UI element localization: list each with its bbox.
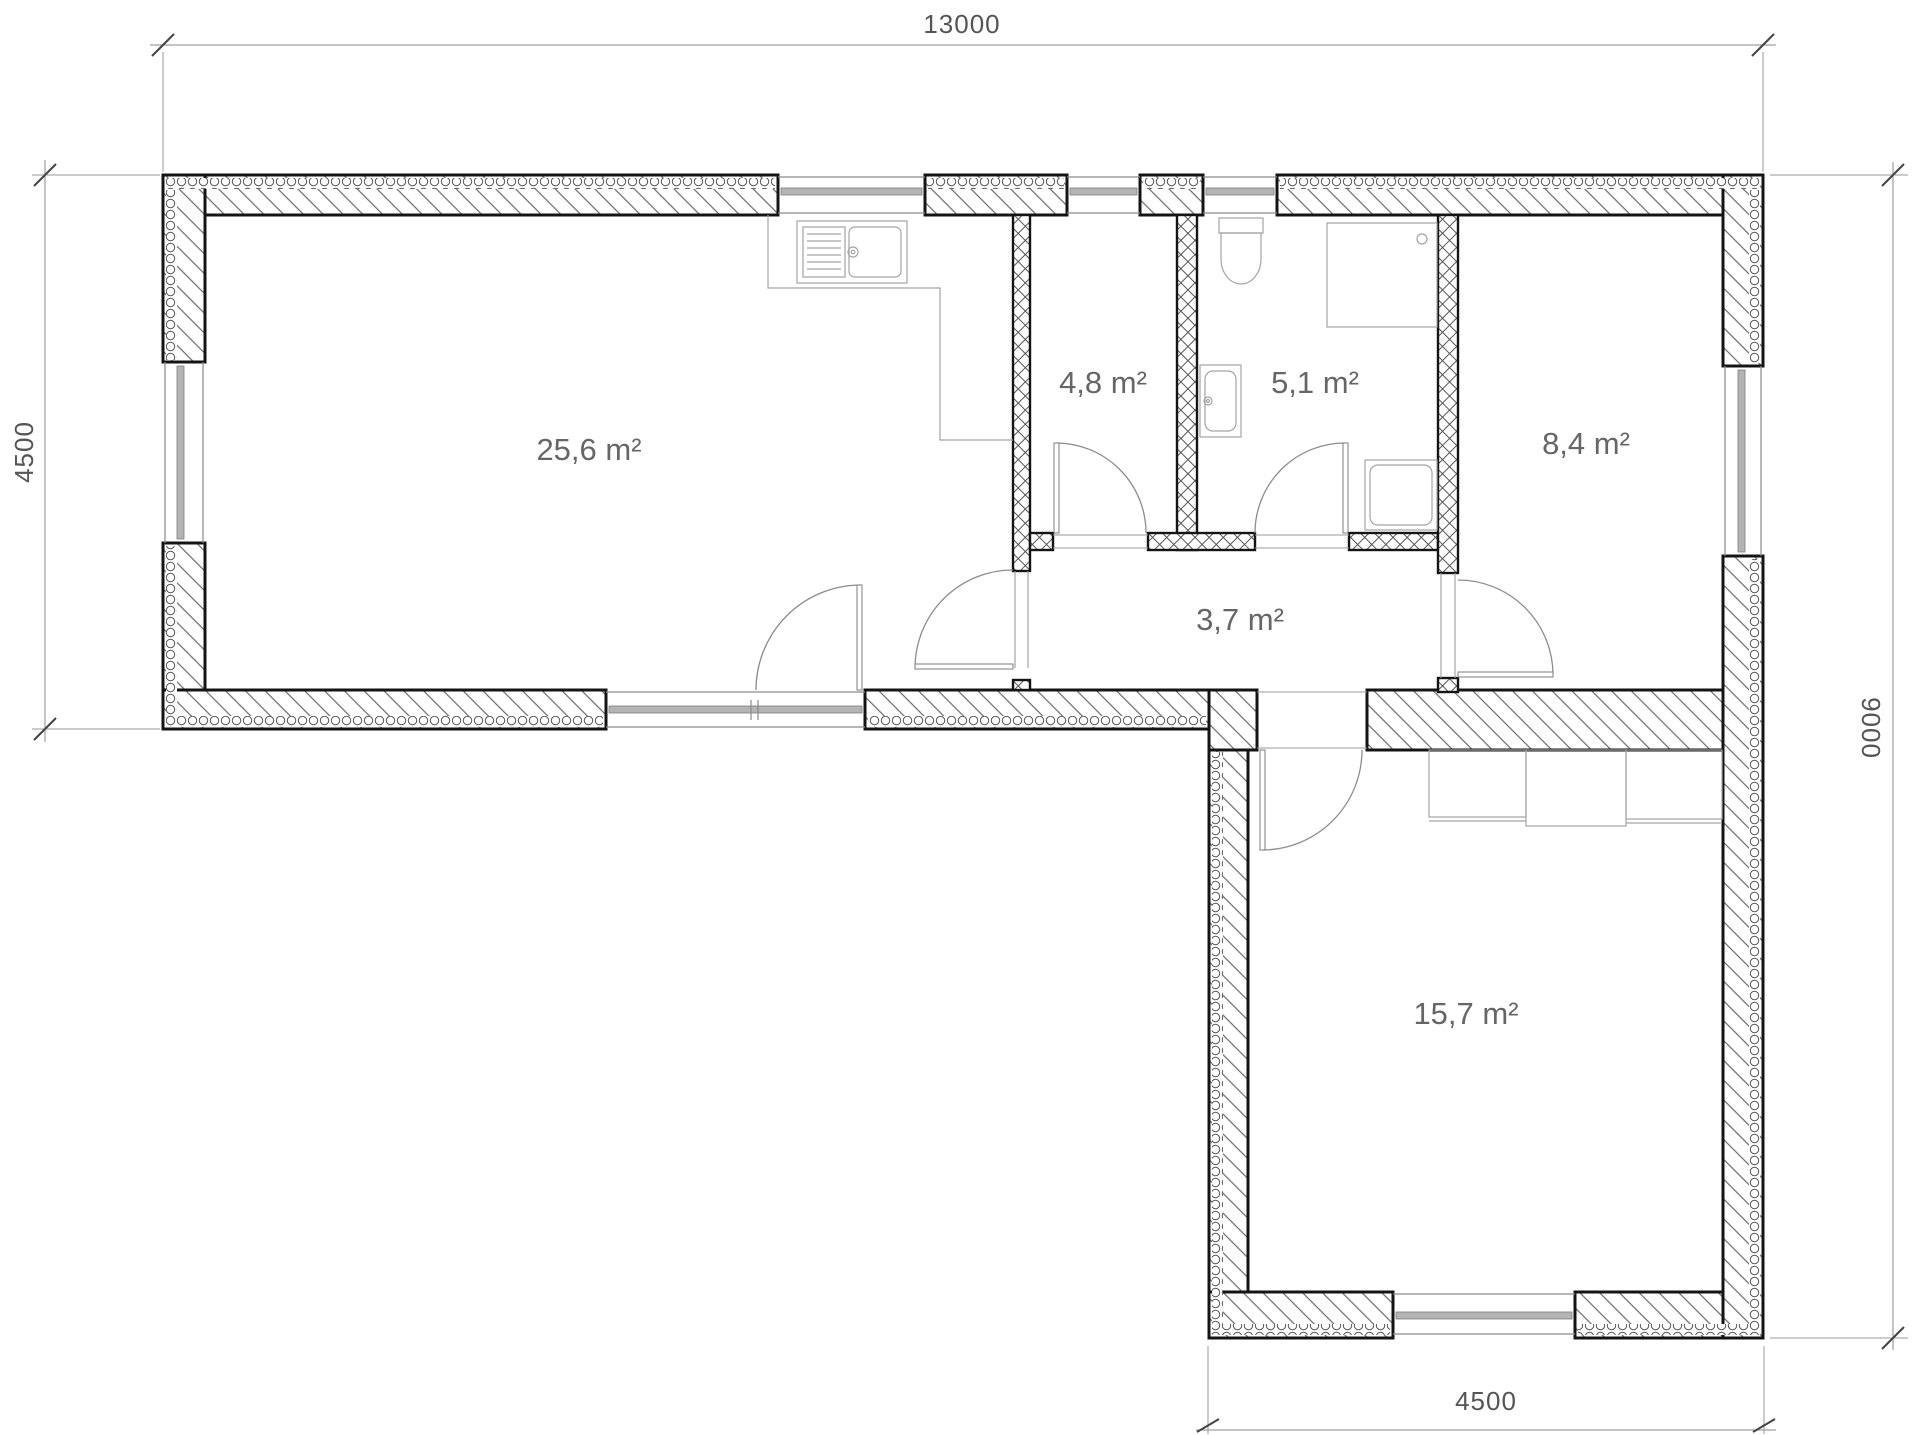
room-label-hallway: 3,7 m²: [1196, 602, 1284, 637]
dots-band: [1143, 178, 1200, 189]
glazing-bar: [177, 366, 184, 539]
door-small-bedroom: [1441, 573, 1553, 678]
wall-wc-bath: [1177, 215, 1197, 550]
door-leaf: [1458, 672, 1553, 677]
dimension-bottom-value: 4500: [1455, 1386, 1517, 1416]
window-living-left: [165, 362, 203, 543]
shower-icon: [1327, 223, 1437, 327]
door-living-hall: [915, 570, 1028, 669]
wall-bath-south: [1349, 533, 1438, 550]
wall-wing-top-corner: [1209, 690, 1257, 750]
dots-band: [868, 716, 1206, 727]
wall-wc-south-b: [1148, 533, 1255, 550]
glazing-bar: [1396, 1312, 1572, 1319]
room-label-small-bedroom: 8,4 m²: [1542, 426, 1630, 461]
window-bedroom-bottom: [1393, 1294, 1575, 1334]
window-bedroom-right: [1725, 366, 1761, 556]
door-leaf: [1260, 750, 1265, 850]
window-kitchen-top: [778, 177, 925, 213]
dimension-top-value: 13000: [923, 9, 1000, 39]
doors: [756, 443, 1553, 850]
kitchen-counter: [768, 215, 1013, 440]
toilet-icon: [1219, 218, 1263, 284]
room-label-wc: 4,8 m²: [1059, 365, 1147, 400]
dimension-right: 9000: [1770, 162, 1908, 1350]
insulation-dots: [166, 178, 1760, 1335]
window-bath-top: [1203, 177, 1277, 213]
dimension-bottom: 4500: [1196, 1346, 1776, 1434]
door-terrace: [756, 585, 862, 690]
door-bedroom-entry: [1257, 692, 1367, 850]
glazing-bar: [1070, 188, 1137, 195]
wall-jamb: [1438, 678, 1458, 692]
washbasin-icon: [1200, 365, 1241, 437]
dots-band: [166, 178, 775, 189]
window-terrace-bottom: [606, 692, 865, 727]
wall-wing-top: [1367, 690, 1763, 750]
door-leaf: [1343, 443, 1348, 533]
door-wc: [1053, 443, 1148, 548]
dots-band: [1280, 178, 1760, 189]
wall-wc-south-a: [1030, 533, 1053, 550]
glazing-bar: [781, 188, 922, 195]
window-wc-top: [1067, 177, 1140, 213]
dots-band: [1212, 1324, 1390, 1335]
room-label-bathroom: 5,1 m²: [1271, 365, 1359, 400]
dimension-left-value: 4500: [9, 421, 39, 483]
dots-band: [928, 178, 1064, 189]
dots-band: [1212, 752, 1223, 1335]
door-leaf: [915, 664, 1013, 669]
door-leaf: [1054, 443, 1059, 533]
wardrobe-icon: [1429, 750, 1722, 826]
dots-band: [1578, 1324, 1760, 1335]
exterior-walls: [163, 175, 1763, 1338]
wall-jamb: [1013, 680, 1030, 690]
kitchen-sink-icon: [797, 221, 907, 283]
glazing-bar: [1206, 188, 1274, 195]
dots-band: [1749, 190, 1760, 363]
door-bathroom: [1255, 443, 1349, 548]
glazing-bar: [1738, 370, 1745, 552]
washing-machine-icon: [1365, 460, 1437, 530]
dimension-left: 4500: [9, 160, 160, 742]
windows: [165, 177, 1761, 1334]
dots-band: [166, 716, 603, 727]
dots-band: [166, 546, 177, 726]
wall-living-hall: [1013, 215, 1030, 571]
glazing-bar: [609, 706, 862, 713]
wall-bedroom-west: [1438, 215, 1458, 573]
floor-plan: 25,6 m² 4,8 m² 5,1 m² 8,4 m² 3,7 m² 15,7…: [0, 0, 1920, 1435]
dots-band: [1749, 559, 1760, 1335]
room-label-living: 25,6 m²: [536, 432, 641, 467]
door-leaf: [857, 585, 862, 690]
dimension-right-value: 9000: [1856, 697, 1886, 759]
floor-plan-canvas: 25,6 m² 4,8 m² 5,1 m² 8,4 m² 3,7 m² 15,7…: [0, 0, 1920, 1435]
dots-band: [166, 190, 177, 360]
room-label-bedroom: 15,7 m²: [1413, 996, 1518, 1031]
dimension-top: 13000: [150, 9, 1776, 172]
